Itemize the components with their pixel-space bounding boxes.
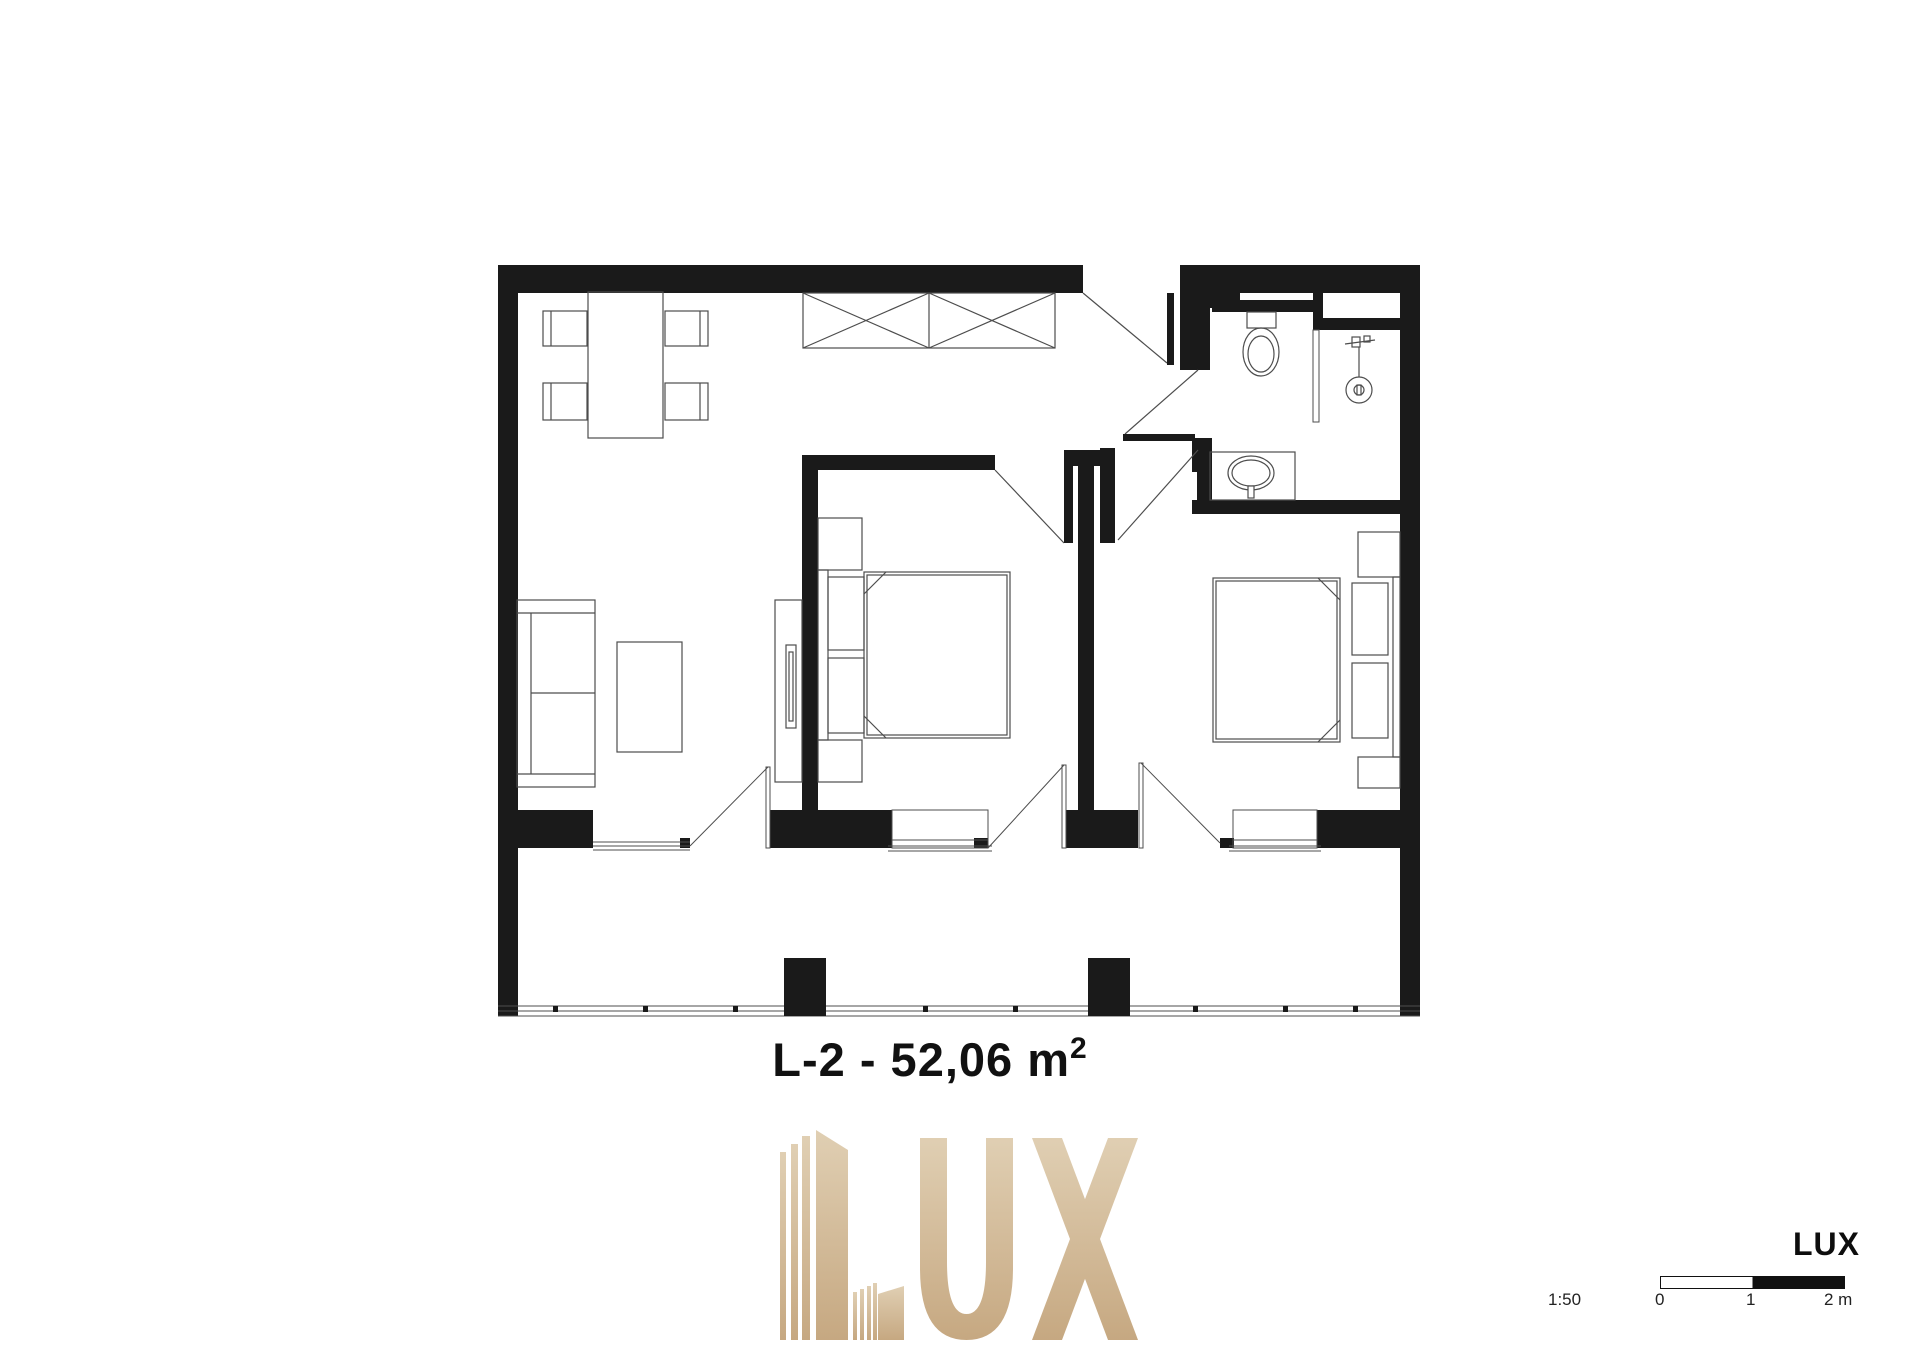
entrance-door-icon xyxy=(1083,293,1174,365)
balcony-railing-icon xyxy=(498,958,1420,1016)
page-title: L-2 - 52,06 m2 xyxy=(480,1032,1380,1087)
dining-chair-icon xyxy=(543,311,708,420)
scale-ratio-label: 1:50 xyxy=(1548,1290,1581,1310)
bed-2-icon xyxy=(1213,532,1400,788)
window-icon xyxy=(1229,810,1321,851)
sofa-icon xyxy=(517,600,595,787)
wardrobe-icon xyxy=(803,293,1055,348)
toilet-icon xyxy=(1243,312,1279,376)
square-meter-superscript: 2 xyxy=(1070,1032,1088,1065)
balcony-door-icon xyxy=(1139,763,1220,848)
exterior-walls xyxy=(498,265,1420,1016)
balcony-door-icon xyxy=(690,767,770,848)
apartment-area-label: L-2 - 52,06 m xyxy=(772,1033,1070,1086)
bed-1-icon xyxy=(818,518,1010,782)
lux-watermark-logo-icon xyxy=(770,1118,1152,1353)
balcony-door-icon xyxy=(988,765,1066,848)
washbasin-icon xyxy=(1210,452,1295,500)
window-icon xyxy=(593,842,690,850)
scale-tick-1: 1 xyxy=(1746,1290,1755,1310)
scale-tick-2: 2 m xyxy=(1824,1290,1852,1310)
floor-plan xyxy=(480,250,1440,1040)
scale-bar-icon xyxy=(1660,1276,1845,1289)
coffee-table-icon xyxy=(617,642,682,752)
dining-table-set xyxy=(543,292,708,438)
brand-label: LUX xyxy=(1793,1226,1860,1263)
page: { "page": { "background": "#ffffff" }, "… xyxy=(0,0,1920,1358)
balcony-post xyxy=(784,958,826,1016)
scale-tick-0: 0 xyxy=(1655,1290,1664,1310)
balcony-post xyxy=(1088,958,1130,1016)
windows-balcony-doors xyxy=(593,763,1321,851)
shower-glass-partition xyxy=(1313,330,1319,422)
interior-walls xyxy=(802,293,1400,810)
dining-table-icon xyxy=(588,292,663,438)
shower-icon xyxy=(1345,336,1375,403)
tv-unit-icon xyxy=(775,600,802,782)
